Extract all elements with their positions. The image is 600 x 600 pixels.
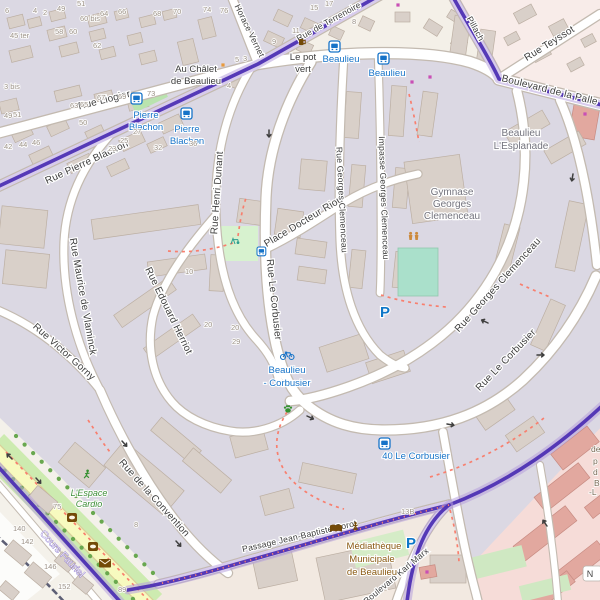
bus-stop-label: Pierre	[174, 124, 199, 135]
map-canvas[interactable]: Rue Liogier Horace Vernet Rue de Terreno…	[0, 0, 600, 600]
house-number: 146	[44, 562, 57, 571]
building	[299, 159, 328, 191]
clipped-label-fragment: p	[593, 456, 598, 466]
parking-p-icon: P	[406, 535, 416, 552]
bus-icon	[131, 93, 142, 104]
house-number: 63	[70, 101, 78, 110]
label-esplanade-1: Beaulieu	[502, 128, 541, 139]
bus-stop-label: Beaulieu	[369, 68, 406, 79]
label-cardio-1: L'Espace	[71, 488, 108, 498]
osm-map: Rue Liogier Horace Vernet Rue de Terreno…	[0, 0, 600, 600]
house-number: 51	[77, 0, 85, 8]
house-number: 4	[33, 6, 37, 15]
house-number: 49	[57, 4, 65, 13]
poi-dot	[428, 75, 431, 78]
label-gymnase-2: Georges	[433, 199, 471, 210]
house-number: 152	[58, 582, 71, 591]
bus-stop-label: Pierre	[133, 110, 158, 121]
building	[0, 206, 48, 249]
house-number: 23	[108, 144, 116, 153]
house-number: 8	[352, 17, 356, 26]
label-gymnase-3: Clemenceau	[424, 211, 480, 222]
label-cardio-2: Cardio	[76, 499, 103, 509]
house-number: 44	[19, 140, 27, 149]
house-number: 73	[147, 89, 155, 98]
bus-icon	[329, 41, 340, 52]
poi-dot	[396, 3, 399, 6]
house-number: 11	[292, 26, 300, 35]
house-number: 36	[189, 139, 197, 148]
bike-stop-label: - Corbusier	[264, 378, 311, 389]
poi-dot	[221, 63, 224, 66]
house-number: 32	[154, 143, 162, 152]
label-au-chalet-1: Au Châlet	[175, 64, 217, 75]
bus-icon	[378, 53, 389, 64]
bus-icon	[181, 108, 192, 119]
clipped-label-fragment: de	[591, 444, 600, 454]
house-number: 142	[21, 537, 34, 546]
safe-icon	[88, 542, 98, 551]
bus-icon	[257, 247, 266, 256]
house-number: 6	[5, 6, 9, 15]
house-number: 69	[118, 92, 126, 101]
house-number: 60	[69, 27, 77, 36]
house-number: 42	[4, 142, 12, 151]
house-number: 49	[4, 111, 12, 120]
house-number: 58	[55, 27, 63, 36]
building	[2, 250, 49, 288]
clipped-label-fragment: -L	[589, 487, 597, 497]
house-number: 89	[118, 585, 126, 594]
house-number: 65	[80, 100, 88, 109]
house-number: 68	[153, 9, 161, 18]
sports-pitch	[398, 248, 438, 296]
house-number: 62	[93, 41, 101, 50]
house-number: 140	[13, 524, 26, 533]
house-number: 9	[272, 37, 276, 46]
house-number: 70	[173, 7, 181, 16]
house-number: 2	[43, 8, 47, 17]
house-number: 50	[79, 118, 87, 127]
bus-stop-label: Beaulieu	[323, 54, 360, 65]
clipped-label-fragment: d	[593, 467, 598, 477]
house-number: 51	[13, 110, 21, 119]
label-mediatheque-1: Médiathèque	[347, 541, 402, 552]
house-number: 3	[243, 54, 247, 63]
house-number: 15	[310, 3, 318, 12]
house-number: 75	[53, 502, 61, 511]
poi-dot	[410, 80, 413, 83]
house-number: 45 ter	[10, 31, 30, 40]
house-number: 10	[185, 267, 193, 276]
road-shield: N	[583, 566, 600, 581]
label-pot-vert-2: vert	[295, 64, 311, 75]
bus-icon	[379, 438, 390, 449]
label-au-chalet-2: de Beaulieu	[171, 76, 221, 87]
safe-icon	[67, 513, 77, 522]
house-number: 46	[32, 138, 40, 147]
label-mediatheque-2: Municipale	[349, 554, 394, 565]
house-number: 8	[134, 520, 138, 529]
house-number: 25	[120, 136, 128, 145]
bus-stop-label: Blachon	[170, 136, 204, 147]
house-number: 20	[204, 320, 212, 329]
house-number: 17	[325, 0, 333, 8]
poi-dot	[425, 570, 428, 573]
envelope-icon	[99, 559, 111, 568]
bike-stop-label: Beaulieu	[269, 365, 306, 376]
house-number: 67	[97, 93, 105, 102]
house-number: 3 bis	[4, 82, 20, 91]
label-esplanade-2: L'Esplanade	[494, 141, 549, 152]
house-number: 76	[220, 6, 228, 15]
shield-text: N	[587, 569, 594, 579]
building	[395, 12, 410, 22]
house-number: 66	[118, 7, 126, 16]
house-number: 4	[227, 81, 231, 90]
label-pot-vert-1: Le pot	[290, 52, 317, 63]
house-number: 29	[232, 337, 240, 346]
house-number: 5	[235, 55, 239, 64]
house-number: 20	[231, 323, 239, 332]
house-number: 74	[203, 5, 211, 14]
label-gymnase-1: Gymnase	[431, 187, 474, 198]
bus-stop-label: 40 Le Corbusier	[382, 451, 450, 462]
house-number: 64	[100, 9, 108, 18]
poi-dot	[583, 112, 586, 115]
building	[388, 86, 406, 137]
house-number: 60 bis	[80, 14, 100, 23]
open-book-icon	[330, 525, 342, 532]
house-number: 27	[133, 127, 141, 136]
house-number: 13B	[401, 507, 414, 516]
parking-p-icon: P	[380, 304, 390, 321]
label-mediatheque-3: de Beaulieu	[347, 567, 397, 578]
